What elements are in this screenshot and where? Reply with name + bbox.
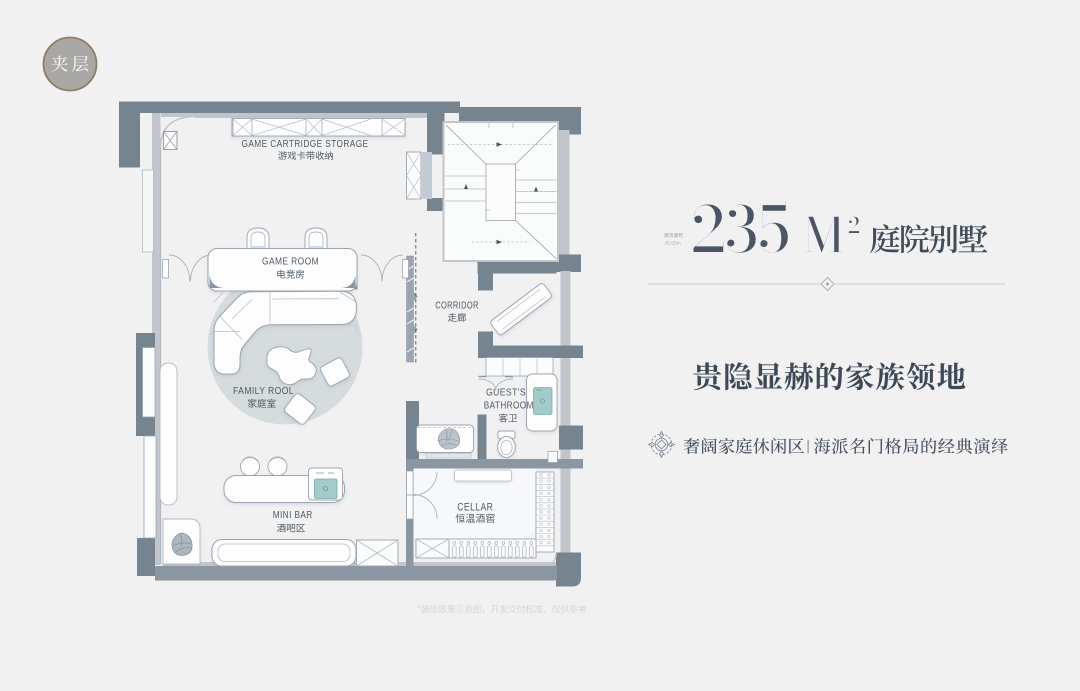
svg-text:FAMILY ROOL: FAMILY ROOL [233, 385, 294, 397]
svg-text:CELLAR: CELLAR [457, 502, 493, 514]
svg-text:GAME CARTRIDGE STORAGE: GAME CARTRIDGE STORAGE [242, 138, 369, 150]
svg-text:CORRIDOR: CORRIDOR [435, 300, 479, 312]
svg-text:BATHROOM: BATHROOM [484, 400, 534, 412]
svg-text:MINI BAR: MINI BAR [273, 509, 313, 521]
svg-text:GUEST'S: GUEST'S [486, 387, 526, 399]
svg-text:GAME ROOM: GAME ROOM [262, 256, 319, 268]
